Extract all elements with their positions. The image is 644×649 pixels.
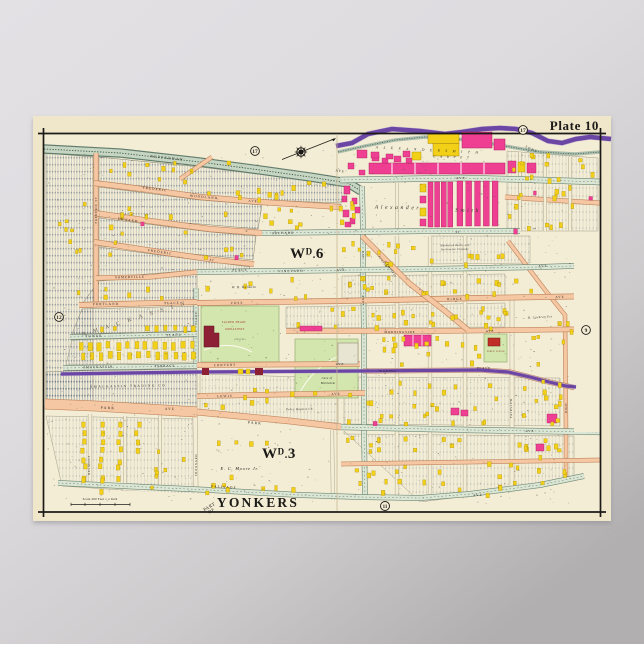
svg-text:HIGH: HIGH	[564, 403, 568, 413]
svg-text:Decoration Company: Decoration Company	[440, 248, 469, 252]
svg-text:E. C. Moore Jr.: E. C. Moore Jr.	[220, 466, 260, 471]
svg-text:AVE: AVE	[473, 493, 483, 498]
svg-text:SOMERVILLE: SOMERVILLE	[115, 275, 145, 280]
svg-text:9: 9	[585, 328, 588, 334]
svg-text:PLACE: PLACE	[232, 268, 247, 273]
svg-text:LAKE: LAKE	[361, 295, 365, 306]
svg-text:YONKERS: YONKERS	[217, 495, 299, 510]
svg-text:11: 11	[383, 505, 388, 510]
svg-text:17: 17	[252, 149, 258, 155]
svg-text:RIDGE: RIDGE	[447, 297, 463, 301]
svg-text:PUBLIC SCHOOL: PUBLIC SCHOOL	[487, 351, 506, 353]
svg-text:AMACKASSIN: AMACKASSIN	[83, 365, 113, 370]
svg-text:(CHAPEL): (CHAPEL)	[234, 338, 246, 341]
svg-text:12: 12	[56, 315, 62, 321]
svg-text:PARK: PARK	[101, 406, 116, 411]
svg-text:AVE: AVE	[538, 264, 547, 268]
svg-text:AVE: AVE	[525, 429, 534, 433]
svg-text:AVE: AVE	[486, 329, 494, 333]
svg-text:PORTLAND: PORTLAND	[93, 302, 119, 306]
svg-text:MORNINGSIDE: MORNINGSIDE	[385, 330, 416, 334]
svg-text:SACRED HEART: SACRED HEART	[222, 321, 246, 324]
svg-text:FAIRVIEW: FAIRVIEW	[509, 398, 513, 418]
svg-text:Cave of: Cave of	[322, 377, 334, 380]
svg-text:Bethlehem: Bethlehem	[321, 382, 336, 385]
svg-text:PLACE: PLACE	[166, 333, 181, 337]
svg-text:VINEYARD: VINEYARD	[278, 269, 304, 273]
svg-text:17: 17	[520, 128, 526, 134]
svg-text:Manhattan Realty and: Manhattan Realty and	[439, 244, 470, 248]
svg-text:AVE: AVE	[456, 176, 466, 180]
svg-text:PLACE: PLACE	[194, 311, 198, 324]
svg-text:Smith: Smith	[455, 208, 481, 214]
svg-text:CONVENT: CONVENT	[214, 363, 236, 367]
svg-text:BELMONT: BELMONT	[87, 455, 91, 475]
svg-text:AVE: AVE	[248, 199, 257, 203]
svg-text:SHONNARD: SHONNARD	[194, 454, 198, 476]
svg-text:ST: ST	[209, 258, 215, 263]
svg-text:Scale 200 Feet = 1 Inch: Scale 200 Feet = 1 Inch	[83, 497, 118, 501]
svg-text:AVE: AVE	[331, 392, 340, 396]
svg-text:FREDERIC ST: FREDERIC ST	[94, 197, 98, 224]
svg-text:VOSS: VOSS	[231, 301, 244, 305]
svg-text:LEWIS: LEWIS	[217, 394, 233, 398]
svg-text:AVE: AVE	[361, 250, 365, 258]
svg-text:Percy Baptist Ch.: Percy Baptist Ch.	[285, 407, 314, 412]
svg-text:AVE: AVE	[555, 295, 564, 299]
svg-text:ST: ST	[455, 230, 460, 234]
svg-text:AVE: AVE	[336, 362, 344, 366]
svg-text:TERRACE: TERRACE	[155, 364, 176, 368]
svg-text:PLACE: PLACE	[477, 366, 491, 370]
svg-text:AVE: AVE	[336, 268, 345, 272]
svg-text:MONASTERY: MONASTERY	[225, 328, 245, 331]
svg-text:ORCHARD: ORCHARD	[272, 231, 295, 235]
svg-text:Alexander: Alexander	[374, 205, 421, 212]
svg-text:Plate 10: Plate 10	[550, 118, 599, 133]
svg-text:AVE: AVE	[165, 407, 175, 411]
svg-text:W. B. Baldwin: W. B. Baldwin	[232, 285, 257, 289]
svg-text:WARING: WARING	[379, 369, 396, 373]
